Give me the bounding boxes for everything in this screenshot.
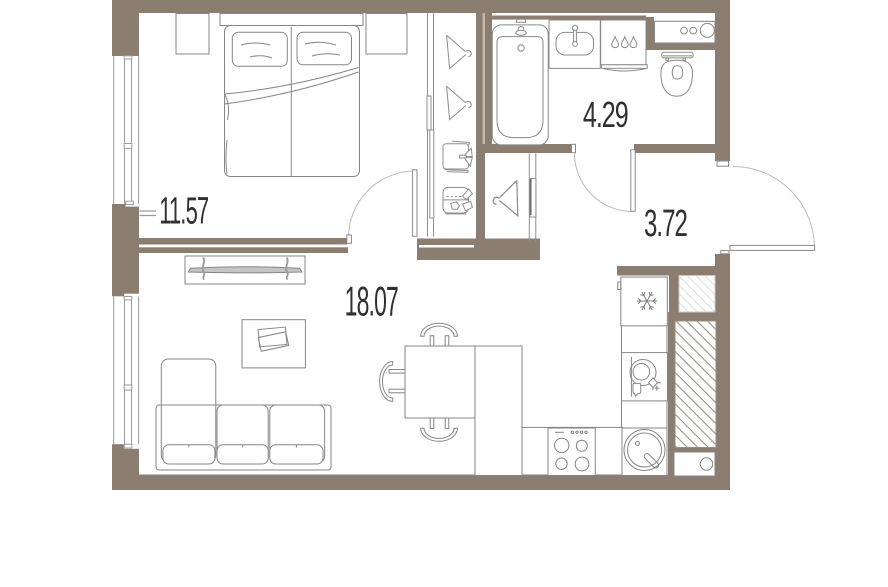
svg-text:3.72: 3.72 — [644, 201, 687, 244]
svg-text:11.57: 11.57 — [159, 189, 208, 232]
svg-text:18.07: 18.07 — [345, 278, 399, 325]
svg-text:4.29: 4.29 — [583, 94, 628, 135]
